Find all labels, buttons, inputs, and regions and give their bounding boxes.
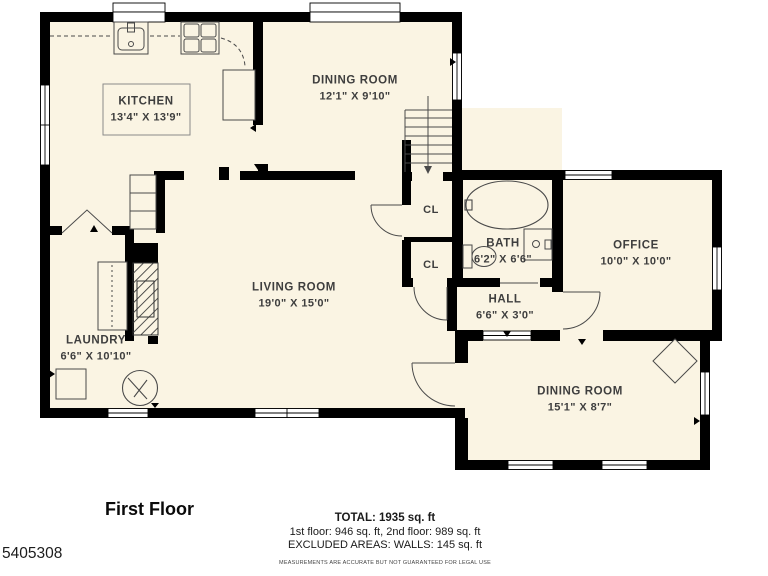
floor-title: First Floor — [105, 499, 194, 520]
basement-stairs — [130, 175, 156, 229]
floor-plan-page: KITCHEN 13'4" X 13'9" DINING ROOM 12'1" … — [0, 0, 768, 576]
closet-label-upper: CL — [423, 204, 439, 216]
closet-label-lower: CL — [423, 259, 439, 271]
floor-areas — [40, 12, 722, 470]
excluded-areas: EXCLUDED AREAS: WALLS: 145 sq. ft — [279, 539, 491, 552]
corner-cabinet — [223, 70, 255, 120]
area-summary: TOTAL: 1935 sq. ft 1st floor: 946 sq. ft… — [279, 512, 491, 566]
disclaimer: MEASUREMENTS ARE ACCURATE BUT NOT GUARAN… — [279, 560, 491, 566]
listing-id: 5405308 — [2, 545, 62, 563]
floor-breakdown: 1st floor: 946 sq. ft, 2nd floor: 989 sq… — [279, 526, 491, 539]
laundry-counter — [98, 262, 127, 330]
chimney — [133, 263, 158, 335]
floor-plan-drawing — [0, 0, 768, 576]
total-area: TOTAL: 1935 sq. ft — [279, 512, 491, 526]
